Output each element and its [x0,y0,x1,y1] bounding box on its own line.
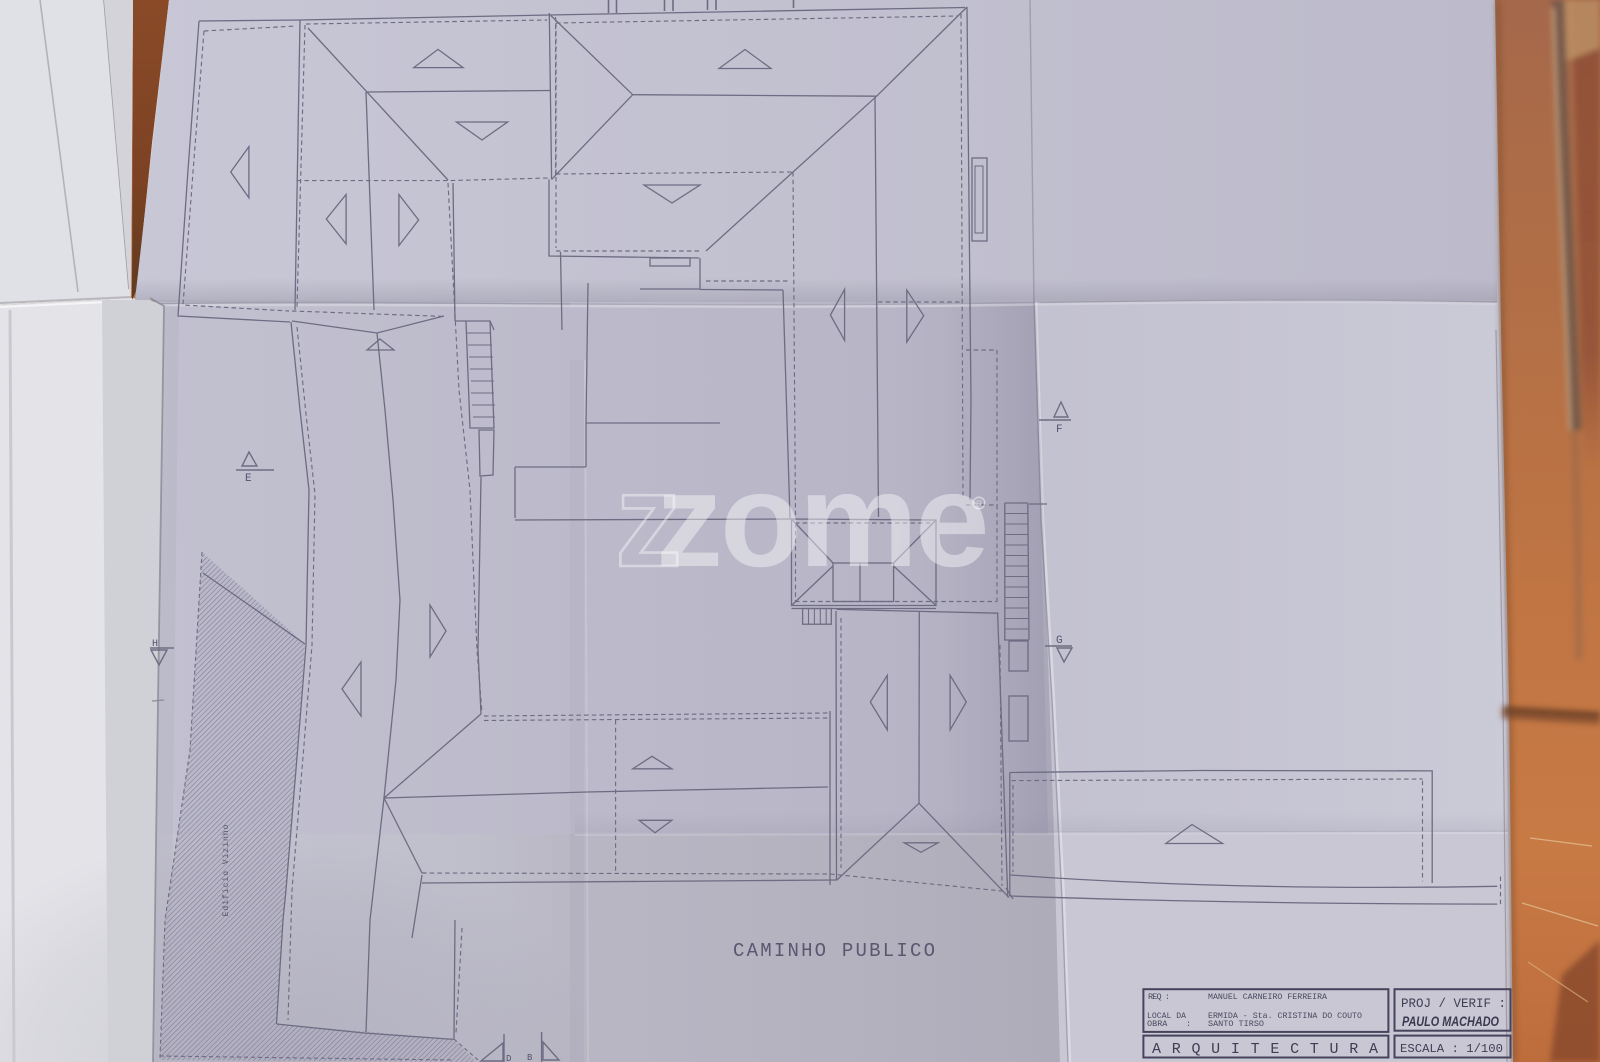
svg-text:OBRA: OBRA [1147,1019,1168,1029]
svg-text:CAMINHO PUBLICO: CAMINHO PUBLICO [733,940,935,962]
svg-text:ESCALA : 1/100: ESCALA : 1/100 [1400,1043,1503,1056]
svg-text:F: F [1056,424,1063,436]
svg-text:B: B [527,1053,533,1062]
svg-text:zome: zome [656,446,987,595]
svg-text::: : [1186,1019,1191,1029]
svg-text:E: E [245,473,252,485]
svg-text:R: R [976,500,982,509]
svg-text:MANUEL CARNEIRO FERREIRA: MANUEL CARNEIRO FERREIRA [1208,992,1328,1002]
svg-text:PROJ / VERIF :: PROJ / VERIF : [1401,997,1506,1011]
svg-text:Edificio Vizinho: Edificio Vizinho [222,824,231,917]
svg-text:REQ :: REQ : [1148,992,1170,1002]
svg-text:SANTO TIRSO: SANTO TIRSO [1208,1019,1264,1029]
svg-text:PAULO MACHADO: PAULO MACHADO [1402,1014,1499,1029]
svg-text:H: H [152,639,158,650]
svg-text:D: D [506,1054,511,1062]
svg-text:G: G [1056,635,1063,647]
